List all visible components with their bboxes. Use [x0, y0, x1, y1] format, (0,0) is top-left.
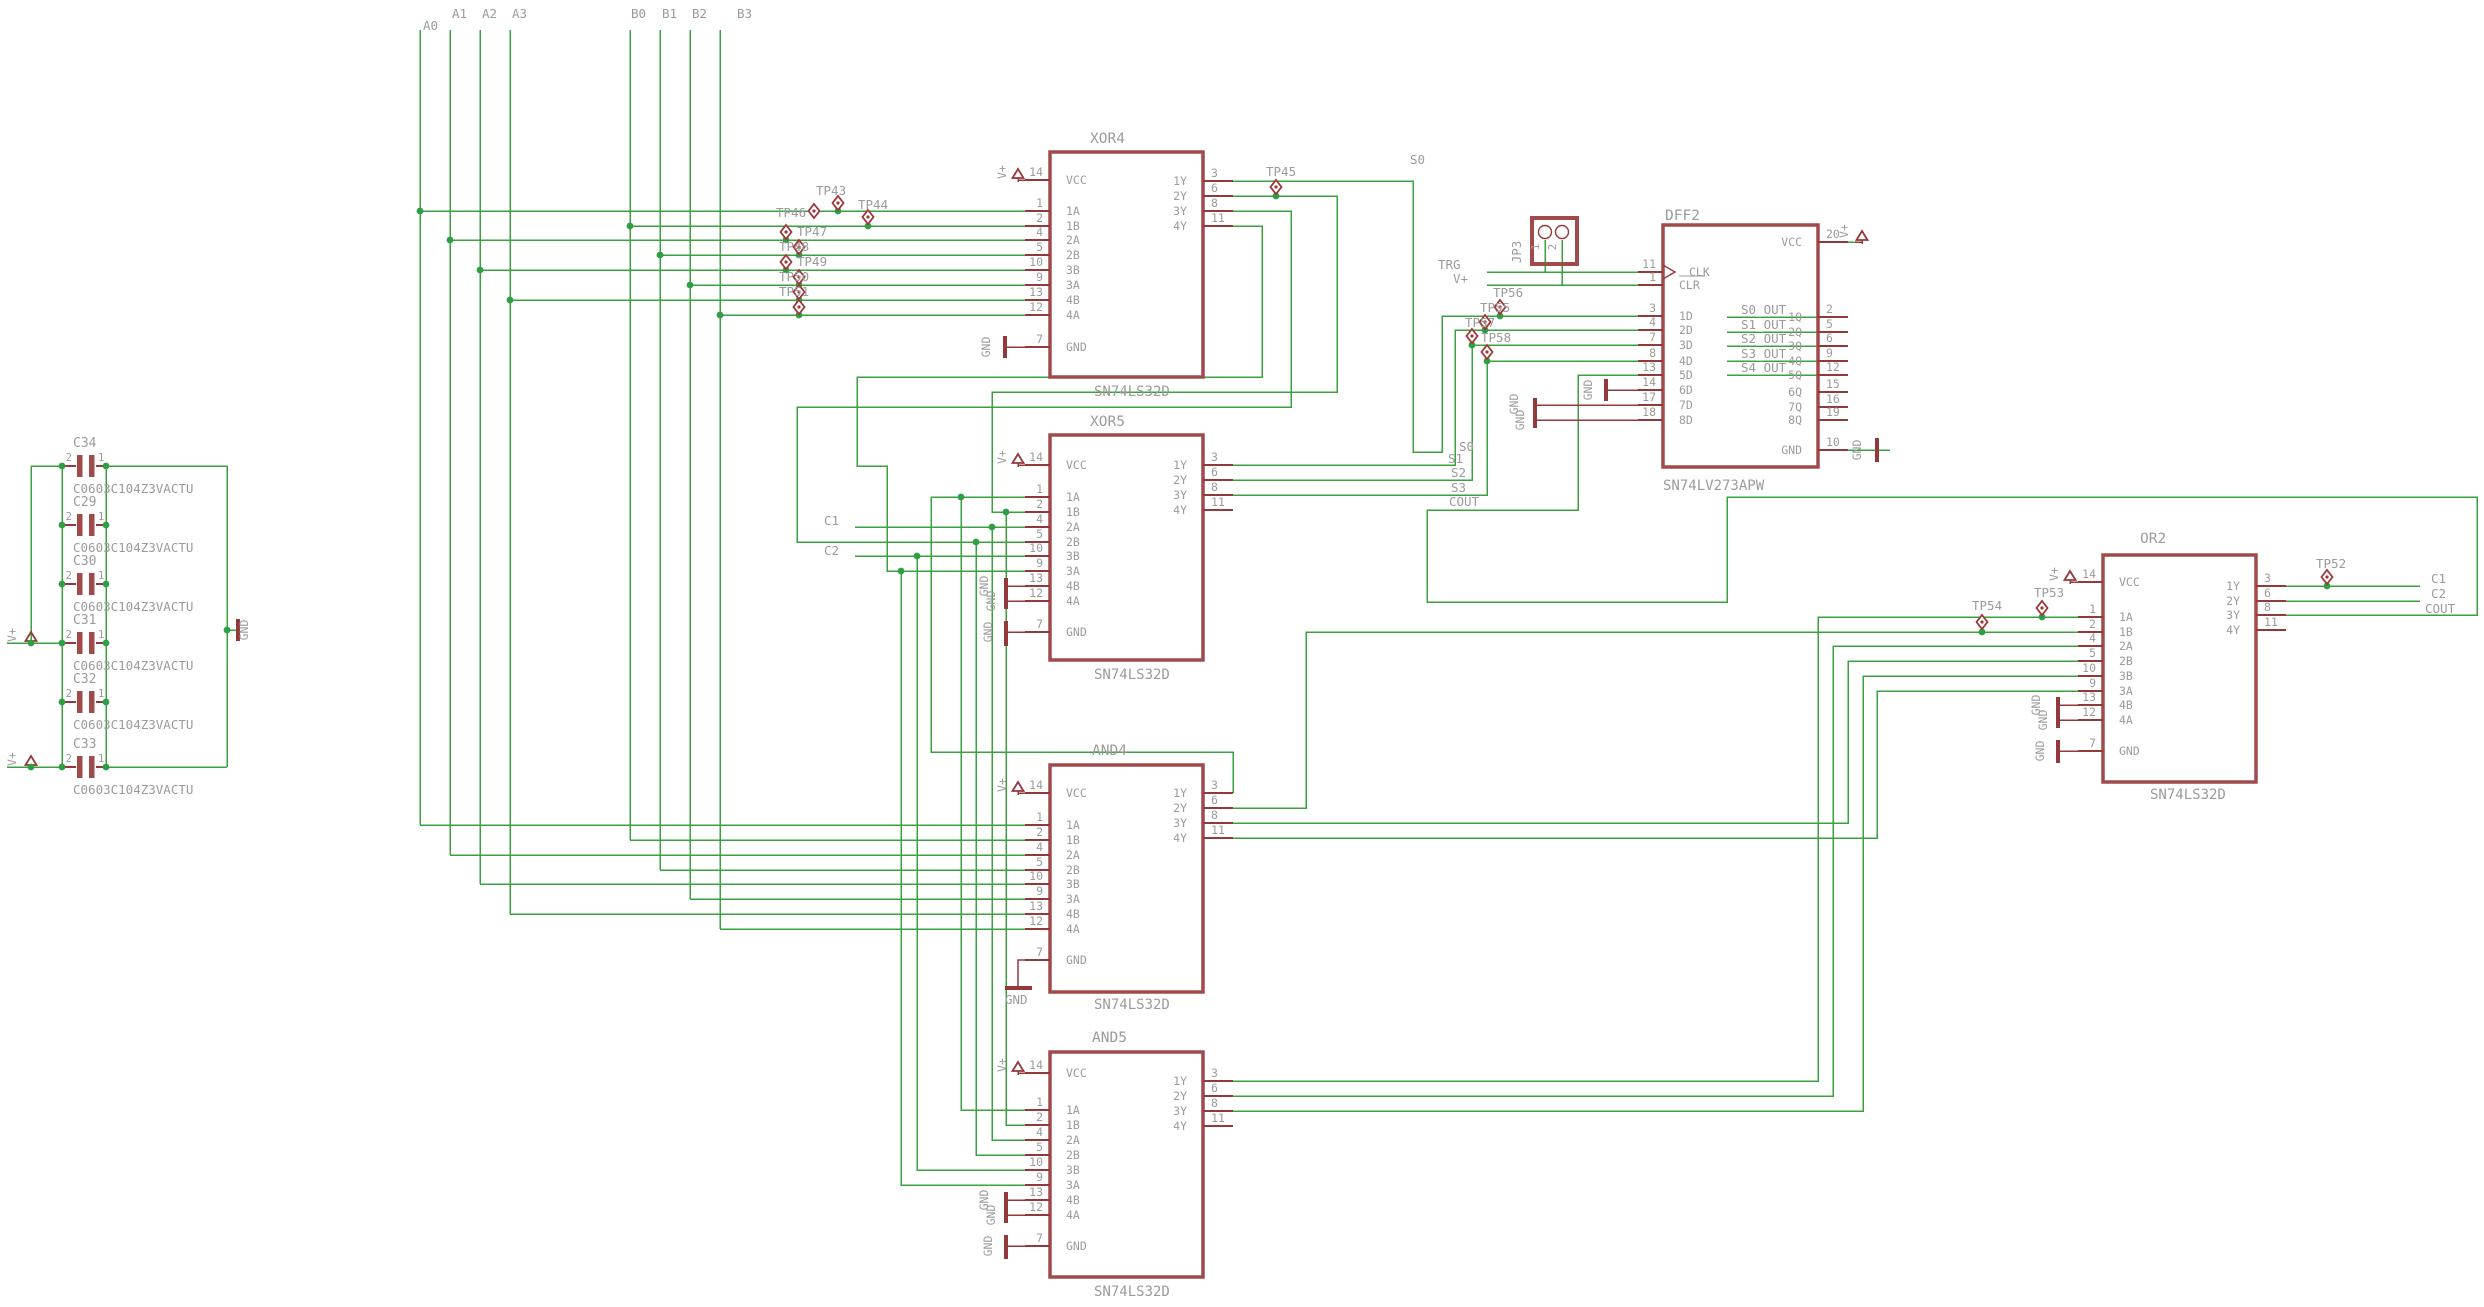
svg-text:7: 7 — [1036, 1231, 1043, 1245]
svg-text:18: 18 — [1642, 405, 1656, 419]
svg-text:10: 10 — [1826, 435, 1840, 449]
testpoint-TP57: TP57 — [1465, 315, 1495, 330]
svg-text:12: 12 — [1029, 1200, 1043, 1214]
svg-text:12: 12 — [2082, 705, 2096, 719]
jumper-pad — [1539, 226, 1552, 239]
svg-text:10: 10 — [2082, 661, 2096, 675]
junction-dot — [59, 699, 66, 706]
pin-2q: 2Q — [1788, 325, 1802, 339]
svg-text:4: 4 — [1036, 225, 1043, 239]
svg-text:4: 4 — [2089, 631, 2096, 645]
junction-dot — [224, 627, 231, 634]
svg-text:V+: V+ — [995, 450, 1009, 464]
bus-label-b0: B0 — [631, 6, 646, 21]
svg-text:4: 4 — [1036, 512, 1043, 526]
testpoint-TP55: TP55 — [1480, 300, 1510, 316]
cap-plate — [77, 455, 83, 477]
pin-vcc: VCC — [1066, 173, 1087, 187]
cap-part-number: C0603C104Z3VACTU — [73, 540, 193, 555]
bus-label-b3: B3 — [737, 6, 752, 21]
pin-1b: 1B — [1066, 219, 1080, 233]
testpoint-TP47: TP47 — [781, 224, 828, 240]
svg-text:3: 3 — [1649, 301, 1656, 315]
net-label: S0 — [1410, 152, 1425, 167]
pin-1b: 1B — [1066, 505, 1080, 519]
net-label: C1 — [824, 513, 839, 528]
pin-1b: 1B — [2119, 625, 2133, 639]
svg-text:1: 1 — [2089, 602, 2096, 616]
chip-title: XOR4 — [1090, 131, 1125, 147]
testpoint-TP53: TP53 — [2034, 585, 2064, 617]
testpoint-label: TP56 — [1493, 285, 1523, 300]
cap-part-number: C0603C104Z3VACTU — [73, 658, 193, 673]
net-label: S0_OUT — [1741, 302, 1787, 317]
svg-text:11: 11 — [1211, 823, 1225, 837]
pin-3b: 3B — [1066, 1163, 1080, 1177]
chip-part-number: SN74LS32D — [2150, 787, 2226, 803]
net-label: S4_OUT — [1741, 360, 1787, 375]
pin-1a: 1A — [1066, 818, 1080, 832]
pin-gnd: GND — [1066, 1239, 1087, 1253]
junction-dot — [417, 208, 424, 215]
gnd-label: GND — [2033, 741, 2047, 762]
junction-dot — [103, 699, 110, 706]
junction-dot — [914, 553, 921, 560]
svg-text:9: 9 — [2089, 676, 2096, 690]
pin-3a: 3A — [2119, 684, 2133, 698]
pin-3y: 3Y — [1173, 488, 1187, 502]
jumper-name: JP3 — [1509, 241, 1524, 264]
cap-plate — [89, 514, 95, 536]
pin-gnd: GND — [1066, 625, 1087, 639]
svg-text:5: 5 — [1036, 240, 1043, 254]
cap-name: C30 — [73, 554, 96, 569]
svg-text:9: 9 — [1036, 884, 1043, 898]
svg-text:V+: V+ — [995, 778, 1009, 792]
net-label: TRG — [1438, 257, 1461, 272]
junction-dot — [687, 282, 694, 289]
svg-text:19: 19 — [1826, 405, 1840, 419]
junction-dot — [28, 764, 35, 771]
svg-text:V+: V+ — [5, 628, 19, 642]
jumper-pad — [1556, 226, 1569, 239]
chip-part-number: SN74LS32D — [1094, 997, 1170, 1013]
svg-text:1: 1 — [98, 452, 104, 464]
net-label: S3_OUT — [1741, 346, 1787, 361]
cap-plate — [89, 691, 95, 713]
pin-2y: 2Y — [1173, 1089, 1187, 1103]
net-label: COUT — [1449, 494, 1480, 509]
svg-text:6: 6 — [1211, 1081, 1218, 1095]
vplus-symbols: V+V+V+V+V+V+V+V+ — [5, 165, 2103, 1075]
svg-text:V+: V+ — [995, 1058, 1009, 1072]
chip-AND5: AND5SN74LS32D14VCC11A21B42A52B103B93A134… — [1025, 1030, 1233, 1300]
testpoint-label: TP50 — [779, 269, 809, 284]
pin-5q: 5Q — [1788, 368, 1802, 382]
chip-title: XOR5 — [1090, 414, 1125, 430]
pin-1a: 1A — [1066, 204, 1080, 218]
svg-text:7: 7 — [1036, 617, 1043, 631]
svg-text:12: 12 — [1826, 360, 1840, 374]
gnd-label: GND — [984, 1205, 998, 1226]
chip-part-number: SN74LV273APW — [1663, 478, 1765, 494]
pin-7q: 7Q — [1788, 400, 1802, 414]
svg-text:9: 9 — [1826, 346, 1833, 360]
pin-4a: 4A — [1066, 1208, 1080, 1222]
pin-3b: 3B — [2119, 669, 2133, 683]
pin-gnd: GND — [1066, 340, 1087, 354]
svg-text:8: 8 — [1649, 346, 1656, 360]
net-label: C1 — [2431, 571, 2446, 586]
pin-2b: 2B — [1066, 863, 1080, 877]
svg-text:12: 12 — [1029, 914, 1043, 928]
testpoint-TP48: TP48 — [779, 239, 809, 255]
svg-text:2: 2 — [1036, 497, 1043, 511]
pin-gnd: GND — [1781, 443, 1802, 457]
junction-dot — [958, 494, 965, 501]
svg-text:4: 4 — [1036, 840, 1043, 854]
pin-4y: 4Y — [1173, 219, 1187, 233]
cap-part-number: C0603C104Z3VACTU — [73, 599, 193, 614]
svg-text:1: 1 — [98, 753, 104, 765]
junction-dot — [507, 297, 514, 304]
capacitor-C31: 21C31C0603C104Z3VACTU — [62, 613, 193, 673]
junction-dot — [59, 764, 66, 771]
vplus-icon — [2065, 571, 2076, 580]
testpoint-label: TP49 — [797, 254, 827, 269]
pin-gnd: GND — [1066, 953, 1087, 967]
svg-text:11: 11 — [2264, 615, 2278, 629]
pin-2d: 2D — [1679, 323, 1693, 337]
svg-text:V+: V+ — [2047, 567, 2061, 581]
testpoint-TP58: TP58 — [1467, 329, 1512, 345]
testpoint-label: TP46 — [776, 205, 806, 220]
pin-1y: 1Y — [1173, 1074, 1187, 1088]
junction-dot — [657, 252, 664, 259]
pin-vcc: VCC — [1066, 1066, 1087, 1080]
junction-dot — [627, 223, 634, 230]
svg-text:13: 13 — [2082, 690, 2096, 704]
pin-1a: 1A — [1066, 490, 1080, 504]
chip-title: DFF2 — [1665, 208, 1700, 224]
pin-3a: 3A — [1066, 892, 1080, 906]
chip-part-number: SN74LS32D — [1094, 667, 1170, 683]
vplus-icon — [1857, 231, 1868, 240]
junction-dot — [59, 581, 66, 588]
svg-text:2: 2 — [2089, 617, 2096, 631]
pin-1a: 1A — [1066, 1103, 1080, 1117]
net-labels: A0A1A2A3B0B1B2B3S0S0S1S2S3COUTC1C2TRGV+C… — [423, 6, 2456, 616]
svg-text:2: 2 — [1547, 244, 1559, 250]
gnd-label: GND — [2036, 710, 2050, 731]
pin-4b: 4B — [1066, 907, 1080, 921]
svg-text:8: 8 — [2264, 600, 2271, 614]
svg-text:15: 15 — [1826, 377, 1840, 391]
chip-title: AND4 — [1092, 743, 1127, 759]
bus-label-a0: A0 — [423, 18, 438, 33]
cap-name: C32 — [73, 672, 96, 687]
pin-2a: 2A — [1066, 520, 1080, 534]
svg-text:3: 3 — [1211, 166, 1218, 180]
svg-text:4: 4 — [1649, 315, 1656, 329]
svg-text:1: 1 — [98, 511, 104, 523]
chip-XOR5: XOR5SN74LS32D14VCC11A21B42A52B103B93A134… — [1025, 414, 1233, 683]
pin-clr: CLR — [1679, 278, 1700, 292]
svg-text:6: 6 — [1826, 331, 1833, 345]
pin-4y: 4Y — [1173, 831, 1187, 845]
pin-3a: 3A — [1066, 564, 1080, 578]
cap-plate — [89, 756, 95, 778]
testpoint-label: TP51 — [779, 284, 809, 299]
pin-3y: 3Y — [1173, 1104, 1187, 1118]
svg-text:14: 14 — [1642, 375, 1656, 389]
testpoint-TP45: TP45 — [1266, 164, 1296, 196]
pin-2a: 2A — [1066, 848, 1080, 862]
pin-7d: 7D — [1679, 398, 1693, 412]
testpoint-unlabeled — [1482, 345, 1493, 361]
pin-8q: 8Q — [1788, 413, 1802, 427]
svg-text:11: 11 — [1211, 211, 1225, 225]
gnd-label: GND — [1581, 380, 1595, 401]
pin-vcc: VCC — [1781, 235, 1802, 249]
svg-text:16: 16 — [1826, 392, 1840, 406]
svg-text:1: 1 — [1036, 1095, 1043, 1109]
schematic-drawing: GNDGNDGNDGNDGNDGNDGNDGNDGNDGNDGNDGNDGNDG… — [0, 0, 2484, 1307]
svg-text:13: 13 — [1642, 360, 1656, 374]
testpoint-label: TP53 — [2034, 585, 2064, 600]
svg-text:7: 7 — [1649, 330, 1656, 344]
pin-4q: 4Q — [1788, 354, 1802, 368]
svg-text:5: 5 — [1826, 317, 1833, 331]
testpoint-TP51: TP51 — [779, 284, 809, 300]
cap-plate — [89, 573, 95, 595]
junction-dot — [973, 539, 980, 546]
chip-title: AND5 — [1092, 1030, 1127, 1046]
net-label: S2 — [1451, 465, 1466, 480]
svg-text:10: 10 — [1029, 541, 1043, 555]
junction-dot — [447, 237, 454, 244]
svg-text:2: 2 — [66, 753, 72, 765]
cap-name: C34 — [73, 436, 97, 451]
gnd-label: GND — [1513, 410, 1527, 431]
svg-text:V+: V+ — [995, 165, 1009, 179]
pin-4a: 4A — [1066, 594, 1080, 608]
svg-text:11: 11 — [1211, 1111, 1225, 1125]
svg-text:2: 2 — [66, 511, 72, 523]
cap-plate — [77, 632, 83, 654]
pin-3b: 3B — [1066, 877, 1080, 891]
pin-4y: 4Y — [1173, 1119, 1187, 1133]
junction-dot — [103, 522, 110, 529]
jumper-jp3: 12JP3 — [1509, 218, 1577, 264]
net-label: S3 — [1451, 480, 1466, 495]
svg-text:1: 1 — [1036, 482, 1043, 496]
junction-dot — [103, 463, 110, 470]
clock-wedge-icon — [1663, 265, 1675, 279]
cap-part-number: C0603C104Z3VACTU — [73, 481, 193, 496]
testpoint-label: TP43 — [816, 183, 846, 198]
pin-2y: 2Y — [1173, 801, 1187, 815]
svg-text:3: 3 — [1211, 778, 1218, 792]
pin-2y: 2Y — [1173, 473, 1187, 487]
pin-1q: 1Q — [1788, 310, 1802, 324]
gnd-label: GND — [984, 591, 998, 612]
svg-text:2: 2 — [66, 629, 72, 641]
svg-text:V+: V+ — [5, 752, 19, 766]
gnd-label: GND — [981, 1236, 995, 1257]
wires — [7, 30, 2477, 1185]
svg-text:17: 17 — [1642, 390, 1656, 404]
svg-text:20: 20 — [1826, 227, 1840, 241]
chip-part-number: SN74LS32D — [1094, 384, 1170, 400]
capacitor-C29: 21C29C0603C104Z3VACTU — [62, 495, 193, 555]
svg-text:13: 13 — [1029, 285, 1043, 299]
pin-3a: 3A — [1066, 278, 1080, 292]
pin-1b: 1B — [1066, 1118, 1080, 1132]
pin-6q: 6Q — [1788, 385, 1802, 399]
chip-AND4: AND4SN74LS32D14VCC11A21B42A52B103B93A134… — [1025, 743, 1233, 1013]
cap-name: C29 — [73, 495, 96, 510]
svg-text:1: 1 — [1036, 196, 1043, 210]
vplus-icon — [1013, 169, 1024, 178]
svg-text:GND: GND — [1005, 992, 1028, 1007]
pin-2y: 2Y — [2226, 594, 2240, 608]
pin-4a: 4A — [1066, 922, 1080, 936]
pin-vcc: VCC — [2119, 575, 2140, 589]
svg-text:1: 1 — [1036, 810, 1043, 824]
pin-clk: CLK — [1689, 265, 1710, 279]
pin-1b: 1B — [1066, 833, 1080, 847]
svg-text:6: 6 — [1211, 181, 1218, 195]
pin-2b: 2B — [1066, 248, 1080, 262]
pin-4d: 4D — [1679, 354, 1693, 368]
pin-3y: 3Y — [1173, 204, 1187, 218]
pin-3y: 3Y — [2226, 608, 2240, 622]
chip-OR2: OR2SN74LS32D14VCC11A21B42A52B103B93A134B… — [2078, 531, 2286, 803]
junction-dot — [59, 522, 66, 529]
testpoint-label: TP55 — [1480, 300, 1510, 315]
bus-label-b2: B2 — [692, 6, 707, 21]
pin-4b: 4B — [1066, 293, 1080, 307]
testpoint-label: TP58 — [1481, 330, 1511, 345]
cap-plate — [77, 691, 83, 713]
testpoint-TP43: TP43 — [816, 183, 846, 211]
testpoint-TP52: TP52 — [2316, 556, 2346, 586]
testpoint-label: TP48 — [779, 239, 809, 254]
pin-4b: 4B — [2119, 698, 2133, 712]
pin-1y: 1Y — [1173, 786, 1187, 800]
junction-dot — [1003, 509, 1010, 516]
pin-3b: 3B — [1066, 263, 1080, 277]
gnd-label: GND — [981, 622, 995, 643]
junction-dot — [898, 568, 905, 575]
pin-6d: 6D — [1679, 383, 1693, 397]
svg-text:3: 3 — [2264, 571, 2271, 585]
svg-text:2: 2 — [66, 452, 72, 464]
pin-4y: 4Y — [2226, 623, 2240, 637]
svg-text:6: 6 — [1211, 465, 1218, 479]
junction-dot — [59, 463, 66, 470]
cap-plate — [77, 514, 83, 536]
svg-text:10: 10 — [1029, 869, 1043, 883]
cap-plate — [89, 632, 95, 654]
svg-text:7: 7 — [2089, 736, 2096, 750]
pin-2a: 2A — [1066, 1133, 1080, 1147]
svg-text:11: 11 — [1211, 495, 1225, 509]
pin-2a: 2A — [1066, 233, 1080, 247]
pin-2b: 2B — [2119, 654, 2133, 668]
svg-text:2: 2 — [1036, 1110, 1043, 1124]
gnd-symbols: GNDGNDGNDGNDGNDGNDGNDGNDGNDGNDGNDGNDGNDG… — [237, 336, 2078, 1259]
junction-dot — [477, 267, 484, 274]
svg-text:13: 13 — [1029, 899, 1043, 913]
svg-text:4: 4 — [1036, 1125, 1043, 1139]
pin-4b: 4B — [1066, 579, 1080, 593]
pin-gnd: GND — [2119, 744, 2140, 758]
testpoint-label: TP57 — [1465, 315, 1495, 330]
svg-text:13: 13 — [1029, 571, 1043, 585]
junction-dot — [103, 640, 110, 647]
svg-text:8: 8 — [1211, 480, 1218, 494]
pin-2b: 2B — [1066, 1148, 1080, 1162]
net-label: C2 — [2431, 586, 2446, 601]
testpoint-TP46: TP46 — [776, 204, 820, 220]
svg-text:7: 7 — [1036, 332, 1043, 346]
testpoint-label: TP54 — [1972, 598, 2002, 613]
junction-dot — [103, 581, 110, 588]
pin-4y: 4Y — [1173, 503, 1187, 517]
svg-text:8: 8 — [1211, 808, 1218, 822]
svg-text:6: 6 — [1211, 793, 1218, 807]
svg-text:1: 1 — [1649, 270, 1656, 284]
bus-label-a3: A3 — [512, 6, 527, 21]
bus-label-a2: A2 — [482, 6, 497, 21]
pin-1y: 1Y — [2226, 579, 2240, 593]
cap-plate — [77, 756, 83, 778]
chip-title: OR2 — [2140, 531, 2166, 547]
cap-part-number: C0603C104Z3VACTU — [73, 782, 193, 797]
net-label: V+ — [1453, 271, 1468, 286]
testpoint-label: TP45 — [1266, 164, 1296, 179]
svg-text:2: 2 — [66, 688, 72, 700]
svg-text:5: 5 — [1036, 855, 1043, 869]
svg-text:14: 14 — [1029, 1058, 1043, 1072]
svg-text:3: 3 — [1211, 1066, 1218, 1080]
chip-part-number: SN74LS32D — [1094, 1284, 1170, 1300]
schematic-canvas[interactable]: GNDGNDGNDGNDGNDGNDGNDGNDGNDGNDGNDGNDGNDG… — [0, 0, 2484, 1307]
pin-vcc: VCC — [1066, 458, 1087, 472]
testpoint-unlabeled — [794, 300, 805, 315]
testpoint-TP54: TP54 — [1972, 598, 2002, 632]
testpoint-TP56: TP56 — [1493, 285, 1523, 300]
pin-1y: 1Y — [1173, 174, 1187, 188]
svg-text:2: 2 — [66, 570, 72, 582]
pin-2y: 2Y — [1173, 189, 1187, 203]
pin-3b: 3B — [1066, 549, 1080, 563]
svg-text:5: 5 — [1036, 1140, 1043, 1154]
svg-text:2: 2 — [1036, 825, 1043, 839]
svg-text:9: 9 — [1036, 1170, 1043, 1184]
gnd-label: GND — [979, 337, 993, 358]
pin-2b: 2B — [1066, 535, 1080, 549]
vplus-icon — [1013, 782, 1024, 791]
junction-dot — [103, 764, 110, 771]
svg-text:9: 9 — [1036, 270, 1043, 284]
pin-3y: 3Y — [1173, 816, 1187, 830]
testpoint-label: TP44 — [858, 197, 888, 212]
pin-2a: 2A — [2119, 639, 2133, 653]
junction-dot — [989, 524, 996, 531]
